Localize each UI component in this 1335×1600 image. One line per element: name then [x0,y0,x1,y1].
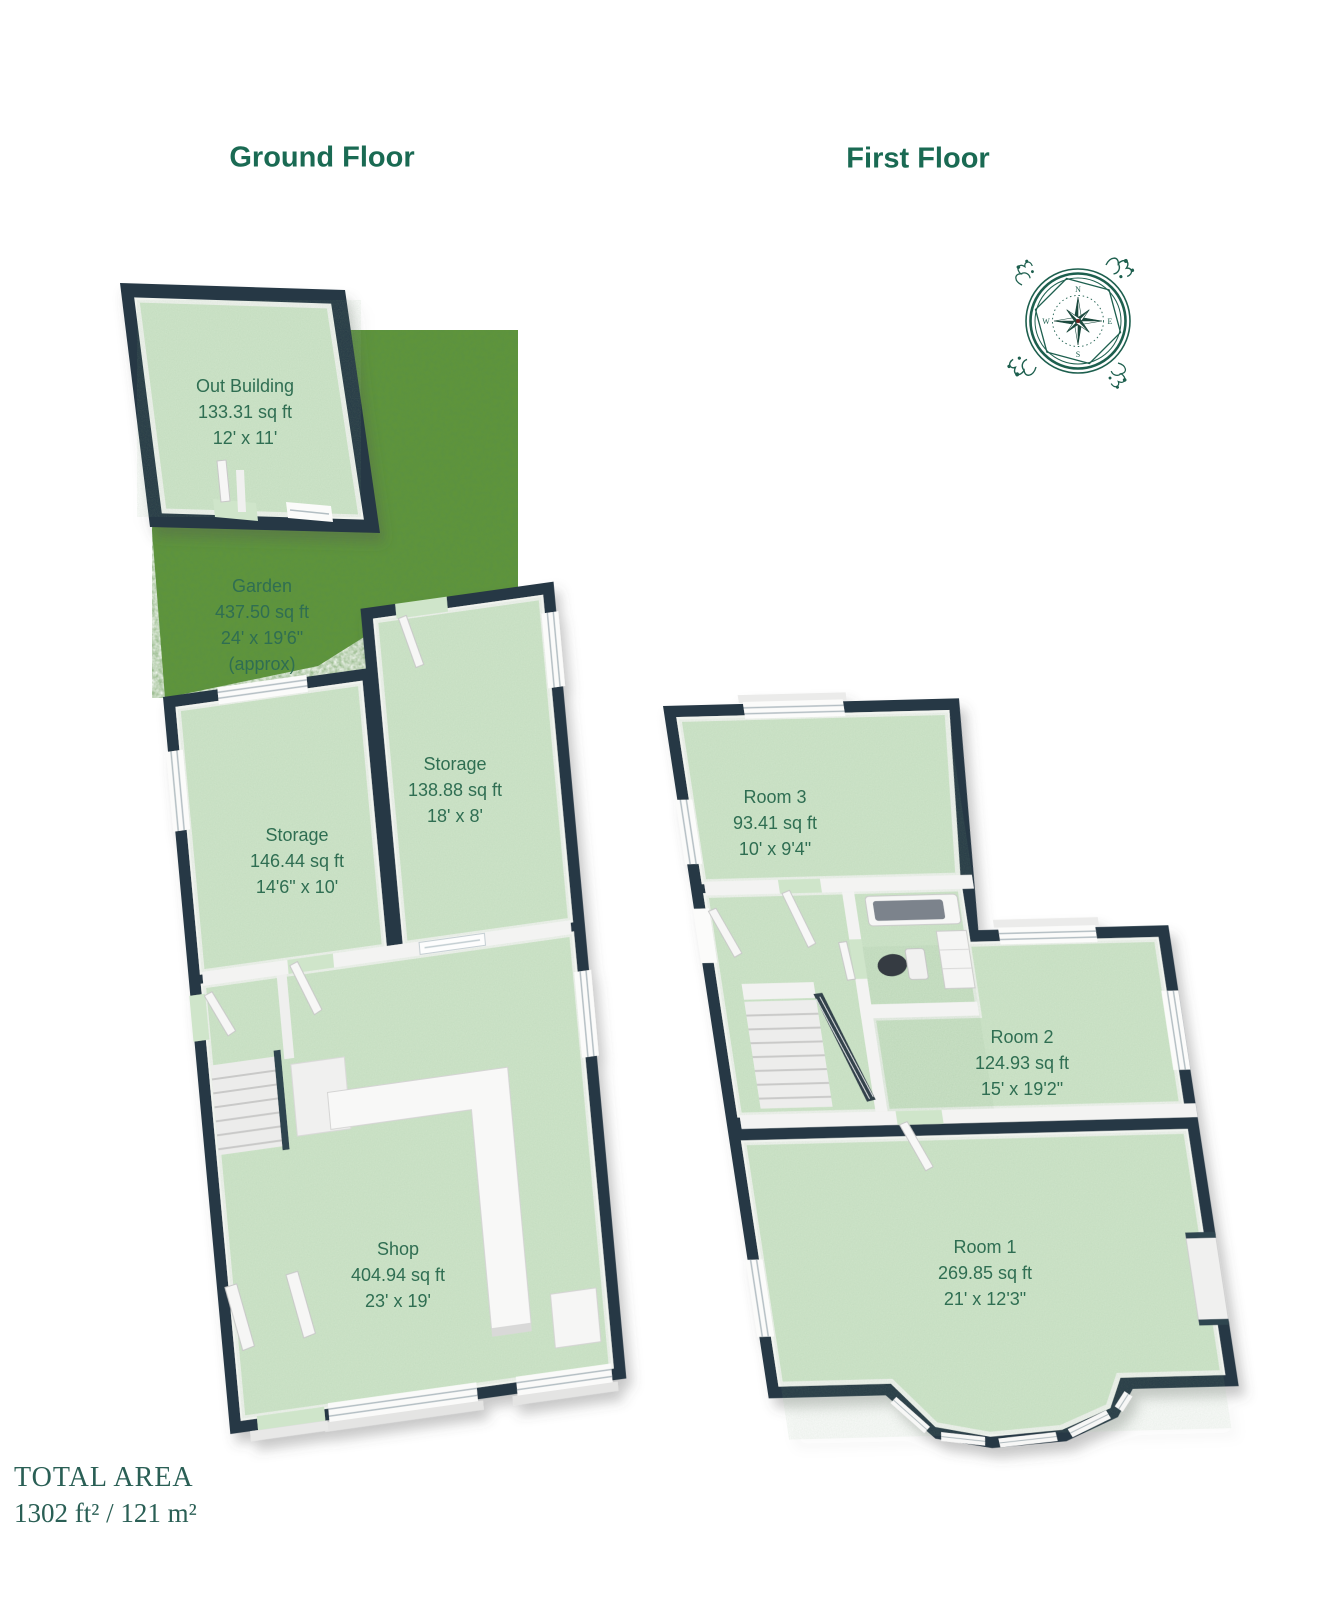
room-name: Out Building [196,373,294,399]
room-name: Room 2 [975,1024,1069,1050]
compass-star [1054,297,1102,345]
room-area: 93.41 sq ft [733,810,817,836]
total-area-block: TOTAL AREA 1302 ft² / 121 m² [14,1462,197,1529]
ground-floor-building [156,581,630,1445]
room-label-out-building: Out Building 133.31 sq ft 12' x 11' [196,373,294,451]
bath-icon [865,894,962,926]
total-area-label: TOTAL AREA [14,1462,197,1494]
ground-floor-title: Ground Floor [229,142,414,175]
total-area-value: 1302 ft² / 121 m² [14,1498,197,1529]
room-area: 404.94 sq ft [351,1262,445,1288]
room-dims: 18' x 8' [408,803,502,829]
floorplan-canvas: NS EW [0,0,1335,1600]
svg-text:S: S [1076,350,1080,359]
room-name: Room 3 [733,784,817,810]
room-area: 133.31 sq ft [196,399,294,425]
room-dims: 21' x 12'3" [938,1286,1032,1312]
room-area: 146.44 sq ft [250,848,344,874]
room-area: 269.85 sq ft [938,1260,1032,1286]
room-label-room1: Room 1 269.85 sq ft 21' x 12'3" [938,1234,1032,1312]
room-label-room3: Room 3 93.41 sq ft 10' x 9'4" [733,784,817,862]
room-name: Shop [351,1236,445,1262]
floorplan-page: NS EW Ground Floor First Floor Out Build… [0,0,1335,1600]
room-label-garden: Garden 437.50 sq ft 24' x 19'6" (approx) [215,573,309,677]
room-label-room2: Room 2 124.93 sq ft 15' x 19'2" [975,1024,1069,1102]
room-dims: 24' x 19'6" [215,625,309,651]
first-floor-title: First Floor [846,143,989,176]
room-name: Room 1 [938,1234,1032,1260]
svg-text:E: E [1108,317,1113,326]
room-area: 437.50 sq ft [215,599,309,625]
room-dims: 14'6" x 10' [250,874,344,900]
room-dims: 10' x 9'4" [733,836,817,862]
room-label-shop: Shop 404.94 sq ft 23' x 19' [351,1236,445,1314]
room3-window-top [738,692,850,719]
room-name: Storage [250,822,344,848]
room-name: Storage [408,751,502,777]
room-note: (approx) [215,651,309,677]
room-name: Garden [215,573,309,599]
shop-fixture [550,1288,600,1348]
room-label-storage-1: Storage 146.44 sq ft 14'6" x 10' [250,822,344,900]
compass-rose-icon: NS EW [1006,253,1136,391]
room-area: 124.93 sq ft [975,1050,1069,1076]
room-dims: 23' x 19' [351,1288,445,1314]
room2-window-top [993,917,1102,944]
room-dims: 15' x 19'2" [975,1076,1069,1102]
room-dims: 12' x 11' [196,425,294,451]
svg-text:N: N [1075,285,1081,294]
room-label-storage-2: Storage 138.88 sq ft 18' x 8' [408,751,502,829]
svg-text:W: W [1042,317,1050,326]
room-area: 138.88 sq ft [408,777,502,803]
